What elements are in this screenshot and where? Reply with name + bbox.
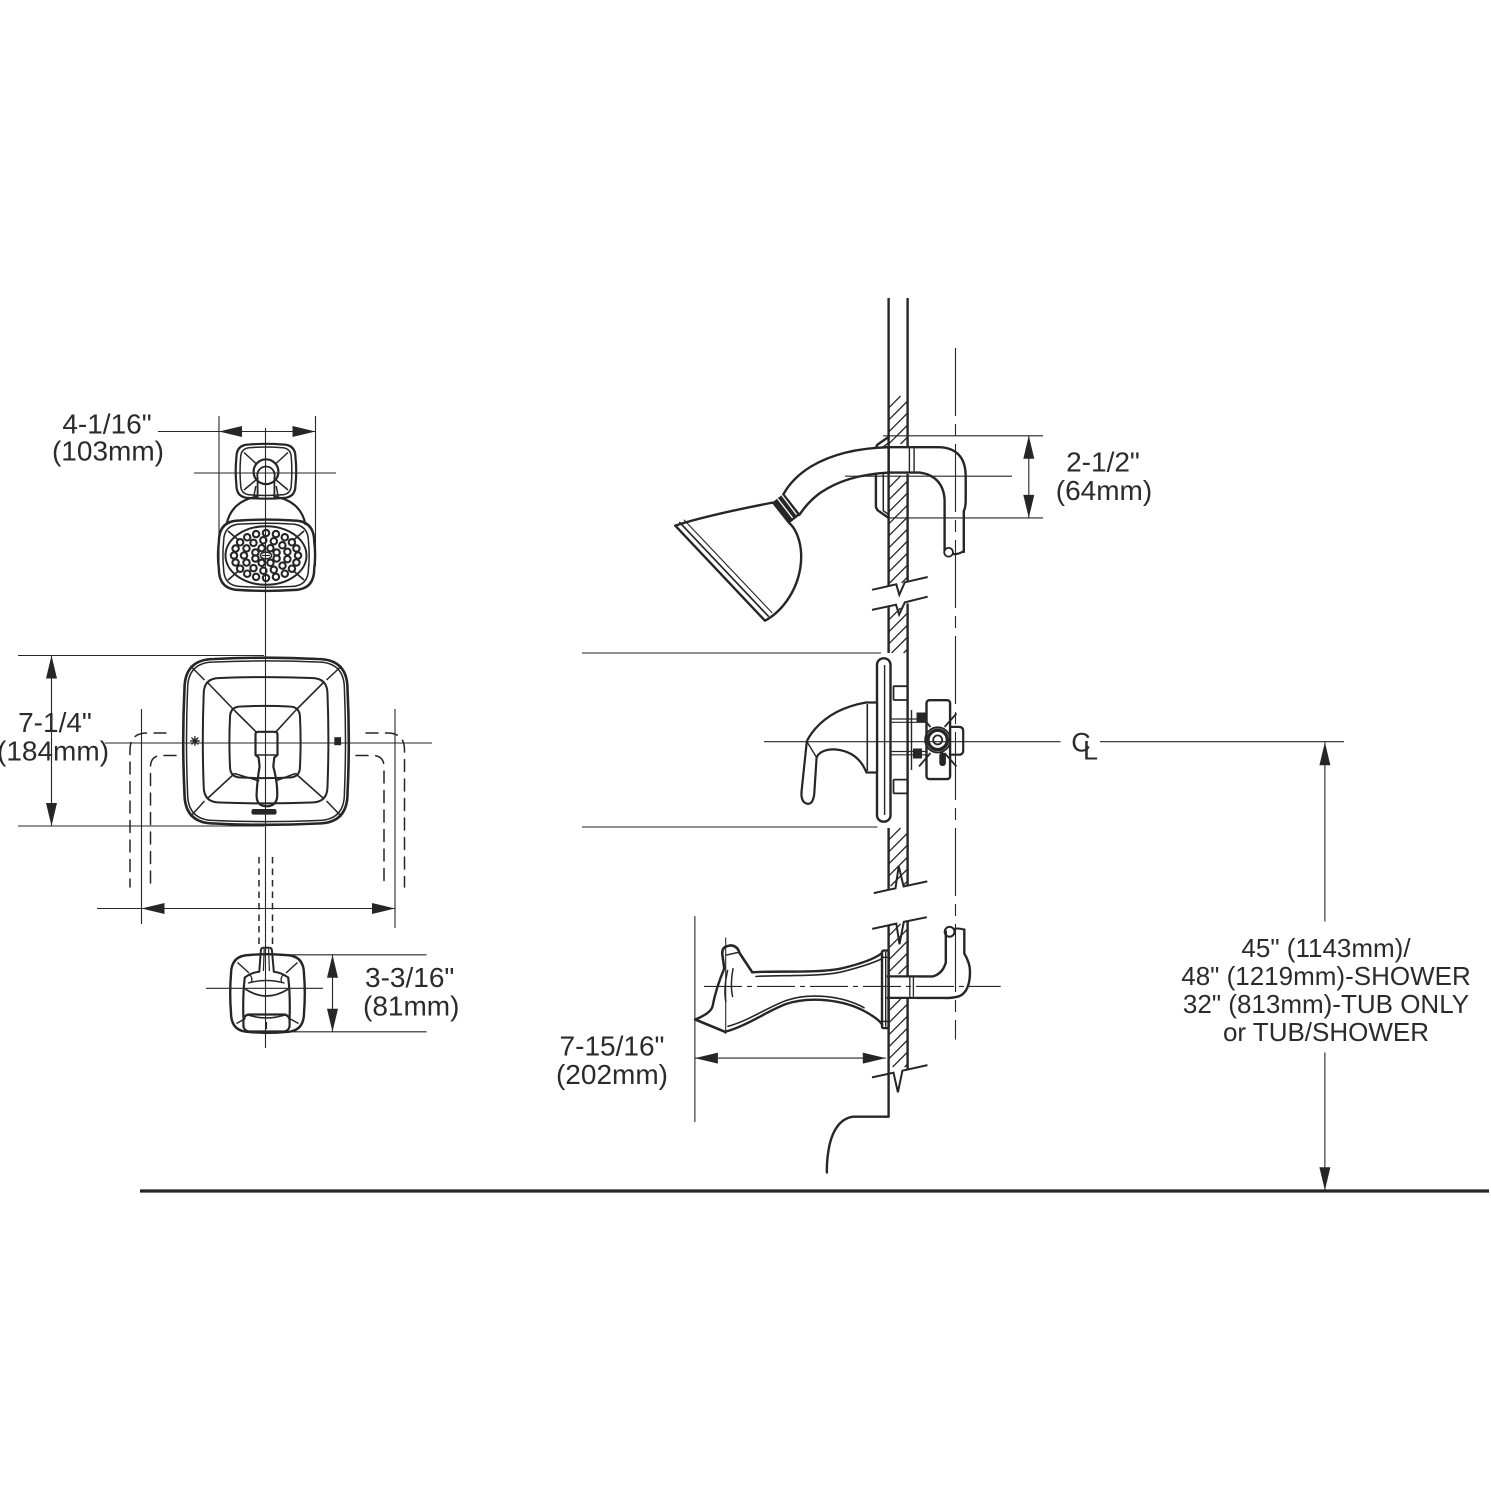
- svg-text:(81mm): (81mm): [363, 991, 459, 1022]
- svg-text:L: L: [1083, 736, 1098, 766]
- svg-text:2-1/2": 2-1/2": [1066, 447, 1140, 478]
- svg-text:(202mm): (202mm): [556, 1059, 668, 1090]
- svg-text:3-3/16": 3-3/16": [365, 962, 454, 993]
- svg-text:48" (1219mm)-SHOWER: 48" (1219mm)-SHOWER: [1181, 961, 1471, 991]
- svg-text:(103mm): (103mm): [52, 436, 164, 467]
- svg-text:45" (1143mm)/: 45" (1143mm)/: [1241, 933, 1411, 963]
- svg-text:or TUB/SHOWER: or TUB/SHOWER: [1223, 1017, 1429, 1047]
- svg-text:7-15/16": 7-15/16": [560, 1031, 665, 1062]
- svg-text:7-1/4": 7-1/4": [18, 707, 92, 738]
- svg-text:(64mm): (64mm): [1056, 475, 1152, 506]
- svg-text:32" (813mm)-TUB ONLY: 32" (813mm)-TUB ONLY: [1183, 989, 1469, 1019]
- svg-text:(184mm): (184mm): [0, 736, 109, 767]
